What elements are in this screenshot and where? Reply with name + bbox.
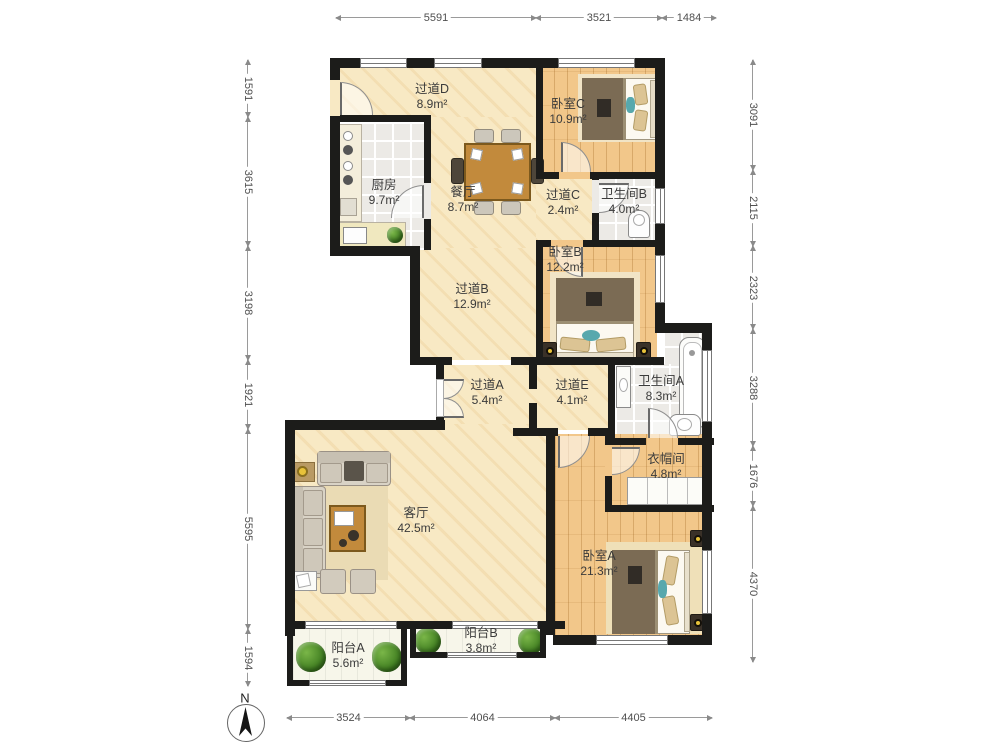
room-label-bedroom-c: 卧室C 10.9m² bbox=[549, 96, 586, 128]
interior-wall-divider-lower bbox=[536, 240, 543, 365]
window-balcony-a bbox=[309, 680, 386, 686]
window-top-dining bbox=[434, 58, 482, 68]
room-area: 8.7m² bbox=[448, 200, 479, 216]
room-name: 过道D bbox=[415, 81, 449, 97]
room-name: 餐厅 bbox=[448, 184, 479, 200]
dimension-value: 4405 bbox=[618, 712, 648, 724]
dimension-bottom-3: 4405 bbox=[555, 717, 712, 718]
dimension-right-6: 4370 bbox=[752, 506, 753, 662]
door-gap-entrance bbox=[436, 379, 444, 417]
dimension-value: 3198 bbox=[242, 288, 254, 318]
room-area: 8.9m² bbox=[415, 97, 449, 113]
dimension-value: 5591 bbox=[421, 12, 451, 24]
room-label-bathroom-a: 卫生间A 8.3m² bbox=[638, 373, 684, 405]
room-name: 过道B bbox=[453, 281, 490, 297]
dimension-value: 3615 bbox=[242, 166, 254, 196]
room-label-hallway-b: 过道B 12.9m² bbox=[453, 281, 490, 313]
kitchen-shelf bbox=[340, 198, 357, 216]
room-name: 衣帽间 bbox=[647, 451, 685, 467]
room-label-balcony-b: 阳台B 3.8m² bbox=[464, 625, 497, 657]
dimension-right-5: 1676 bbox=[752, 446, 753, 506]
room-label-dining: 餐厅 8.7m² bbox=[448, 184, 479, 216]
table-lamp-icon bbox=[297, 466, 308, 477]
plant-icon bbox=[372, 642, 402, 672]
window-right-bathroom-b bbox=[655, 188, 665, 224]
room-name: 过道E bbox=[555, 377, 588, 393]
entry-jamb-top bbox=[436, 357, 444, 379]
sofa-cushion-dark bbox=[344, 461, 364, 481]
dimension-value: 5595 bbox=[242, 514, 254, 544]
dimension-bottom-1: 3524 bbox=[287, 717, 410, 718]
balcony-a-wall-right bbox=[401, 626, 407, 686]
interior-wall-living-bedroom-a bbox=[546, 428, 555, 635]
bed-tv-tray bbox=[586, 292, 602, 306]
stove-burner-icon bbox=[343, 175, 353, 185]
room-area: 5.4m² bbox=[470, 393, 503, 409]
bathtub-drain bbox=[689, 350, 695, 356]
dimension-right-4: 3288 bbox=[752, 329, 753, 446]
coffee-table-tray bbox=[334, 511, 354, 526]
room-area: 9.7m² bbox=[369, 193, 400, 209]
plant-icon bbox=[415, 628, 441, 654]
dimension-value: 4064 bbox=[467, 712, 497, 724]
exterior-wall-left-mid bbox=[410, 246, 420, 365]
room-name: 过道C bbox=[546, 187, 580, 203]
interior-wall-bathroom-a-bottom-r bbox=[678, 438, 714, 445]
room-area: 12.9m² bbox=[453, 297, 490, 313]
room-area: 3.8m² bbox=[464, 641, 497, 657]
dimension-value: 1676 bbox=[747, 461, 759, 491]
dimension-value: 3091 bbox=[747, 100, 759, 130]
door-gap-bedroom-c bbox=[559, 172, 590, 179]
bed-throw bbox=[658, 580, 667, 598]
exterior-wall-kitchen-bottom bbox=[330, 246, 420, 256]
dimension-left-2: 3615 bbox=[247, 117, 248, 246]
stove-burner-icon bbox=[343, 145, 353, 155]
dining-chair bbox=[501, 201, 521, 215]
room-label-kitchen: 厨房 9.7m² bbox=[369, 177, 400, 209]
dimension-value: 3288 bbox=[747, 372, 759, 402]
interior-wall-hallway-stub-top bbox=[511, 357, 541, 365]
room-label-balcony-a: 阳台A 5.6m² bbox=[331, 640, 364, 672]
door-gap-bathroom-b bbox=[592, 180, 599, 213]
dimension-top-3: 1484 bbox=[662, 17, 716, 18]
dimension-top-2: 3521 bbox=[536, 17, 662, 18]
room-label-living-room: 客厅 42.5m² bbox=[397, 505, 434, 537]
interior-wall-cloakroom-bottom bbox=[605, 505, 714, 512]
room-area: 42.5m² bbox=[397, 521, 434, 537]
dimension-value: 1591 bbox=[242, 73, 254, 103]
exterior-wall-living-top bbox=[285, 420, 445, 430]
dimension-value: 4370 bbox=[747, 569, 759, 599]
room-area: 4.1m² bbox=[555, 393, 588, 409]
door-gap-entry-hallway-d bbox=[330, 80, 340, 116]
dimension-right-1: 3091 bbox=[752, 60, 753, 170]
interior-wall-stub-ae-lower bbox=[529, 403, 537, 430]
exterior-wall-living-left bbox=[285, 420, 295, 636]
kitchen-sink bbox=[343, 227, 367, 244]
bed-throw bbox=[626, 97, 635, 113]
door-gap-cloakroom bbox=[605, 445, 612, 476]
window-top-hallway-d bbox=[360, 58, 407, 68]
kettle-icon bbox=[339, 539, 347, 547]
slider-living-balcony-a bbox=[305, 621, 397, 629]
room-area: 4.0m² bbox=[601, 202, 647, 218]
floor-plan-canvas: 过道D 8.9m² 厨房 9.7m² 餐厅 8.7m² 卧室C 10.9m² 过… bbox=[0, 0, 1000, 750]
dining-chair bbox=[474, 129, 494, 143]
dimension-bottom-2: 4064 bbox=[410, 717, 555, 718]
room-label-bedroom-a: 卧室A 21.3m² bbox=[580, 548, 617, 580]
room-name: 卫生间B bbox=[601, 186, 647, 202]
interior-wall-bathroom-a-left bbox=[608, 360, 615, 445]
room-name: 卧室A bbox=[580, 548, 617, 564]
dimension-left-3: 3198 bbox=[247, 246, 248, 360]
stove-burner-icon bbox=[343, 161, 353, 171]
room-area: 10.9m² bbox=[549, 112, 586, 128]
room-area: 12.2m² bbox=[546, 260, 583, 276]
window-bottom-bedroom-a bbox=[596, 635, 668, 645]
dimension-value: 2115 bbox=[747, 193, 759, 223]
room-name: 阳台B bbox=[464, 625, 497, 641]
dimension-right-3: 2323 bbox=[752, 246, 753, 329]
toilet-seat bbox=[677, 418, 692, 431]
room-name: 卧室C bbox=[549, 96, 586, 112]
dimension-left-1: 1591 bbox=[247, 60, 248, 117]
plant-icon-kitchen bbox=[387, 227, 403, 243]
room-label-hallway-d: 过道D 8.9m² bbox=[415, 81, 449, 113]
north-label: N bbox=[240, 691, 249, 706]
book-icon bbox=[296, 573, 311, 588]
dimension-left-5: 5595 bbox=[247, 429, 248, 629]
window-top-bedroom-c bbox=[558, 58, 635, 68]
dimension-left-6: 1594 bbox=[247, 629, 248, 686]
interior-wall-divider-upper bbox=[536, 58, 543, 179]
kettle-icon bbox=[348, 530, 359, 541]
bed-tv-tray bbox=[597, 99, 611, 117]
dimension-top-1: 5591 bbox=[336, 17, 536, 18]
bed-tv-tray bbox=[628, 566, 642, 584]
room-name: 卧室B bbox=[546, 244, 583, 260]
sofa-cushion bbox=[366, 463, 388, 483]
interior-wall-stub-ae-upper bbox=[529, 365, 537, 389]
stove-burner-icon bbox=[343, 131, 353, 141]
room-area: 8.3m² bbox=[638, 389, 684, 405]
dimension-right-2: 2115 bbox=[752, 170, 753, 246]
dining-plate bbox=[511, 148, 524, 161]
room-label-hallway-e: 过道E 4.1m² bbox=[555, 377, 588, 409]
plant-icon bbox=[296, 642, 326, 672]
room-area: 4.8m² bbox=[647, 467, 685, 483]
sink-basin bbox=[619, 378, 628, 392]
dimension-value: 3524 bbox=[333, 712, 363, 724]
dining-chair bbox=[501, 129, 521, 143]
bed-throw bbox=[582, 330, 600, 341]
room-name: 卫生间A bbox=[638, 373, 684, 389]
room-label-bathroom-b: 卫生间B 4.0m² bbox=[601, 186, 647, 218]
interior-wall-kitchen-top bbox=[330, 115, 431, 122]
room-label-bedroom-b: 卧室B 12.2m² bbox=[546, 244, 583, 276]
dimension-left-4: 1921 bbox=[247, 360, 248, 429]
room-label-cloakroom: 衣帽间 4.8m² bbox=[647, 451, 685, 483]
room-area: 2.4m² bbox=[546, 203, 580, 219]
dimension-value: 1921 bbox=[242, 379, 254, 409]
dimension-value: 1594 bbox=[242, 642, 254, 672]
bed-duvet bbox=[612, 550, 658, 634]
room-name: 过道A bbox=[470, 377, 503, 393]
dimension-value: 1484 bbox=[674, 12, 704, 24]
room-name: 阳台A bbox=[331, 640, 364, 656]
room-name: 厨房 bbox=[369, 177, 400, 193]
window-right-bathroom-a bbox=[702, 350, 712, 422]
ottoman bbox=[350, 569, 376, 594]
dimension-value: 3521 bbox=[584, 12, 614, 24]
dining-plate bbox=[470, 148, 483, 161]
room-label-hallway-a: 过道A 5.4m² bbox=[470, 377, 503, 409]
room-area: 5.6m² bbox=[331, 656, 364, 672]
window-right-bedroom-b bbox=[655, 255, 665, 303]
room-area: 21.3m² bbox=[580, 564, 617, 580]
ottoman bbox=[320, 569, 346, 594]
dining-plate bbox=[511, 182, 524, 195]
interior-wall-bedroom-c-bottom bbox=[536, 172, 664, 179]
balcony-a-wall-left bbox=[287, 630, 293, 686]
door-gap-kitchen bbox=[424, 183, 431, 219]
interior-wall-bedroom-b-bottom bbox=[536, 357, 664, 365]
dining-side-chair bbox=[451, 158, 464, 184]
exterior-wall-entry-step bbox=[410, 357, 452, 365]
sofa-cushion bbox=[303, 490, 323, 516]
window-right-bedroom-a bbox=[702, 550, 712, 614]
sofa-cushion bbox=[320, 463, 342, 483]
dimension-value: 2323 bbox=[747, 272, 759, 302]
room-label-hallway-c: 过道C 2.4m² bbox=[546, 187, 580, 219]
room-name: 客厅 bbox=[397, 505, 434, 521]
sofa-cushion bbox=[303, 518, 323, 546]
interior-wall-bathroom-a-bottom-l bbox=[608, 438, 646, 445]
